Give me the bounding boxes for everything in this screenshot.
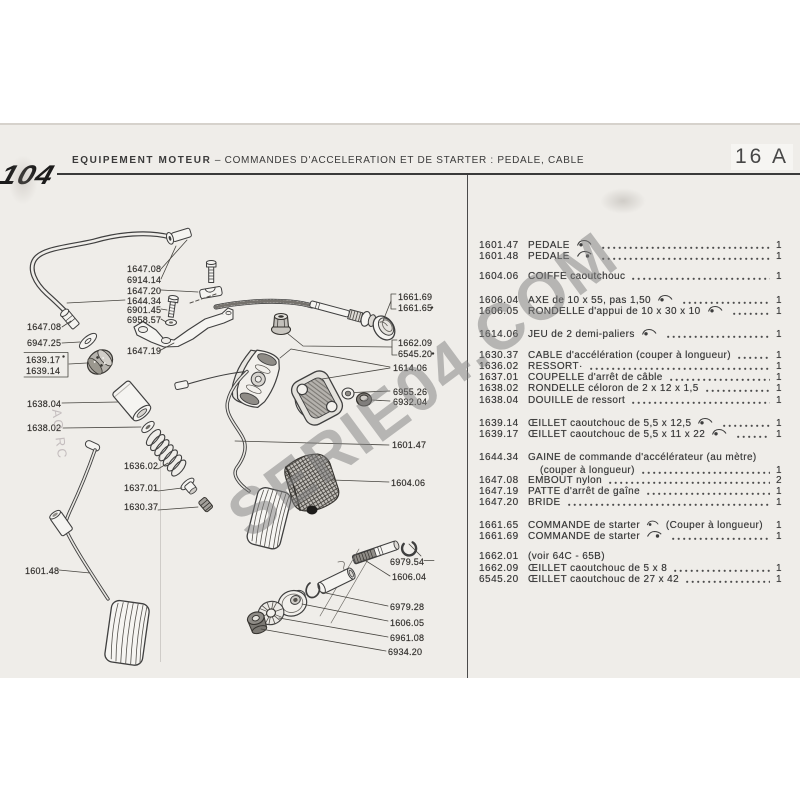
svg-text:1647.20: 1647.20 xyxy=(127,286,161,296)
svg-text:1638.04: 1638.04 xyxy=(27,399,61,409)
svg-text:1604.06: 1604.06 xyxy=(391,478,425,488)
svg-text:1647.08: 1647.08 xyxy=(127,264,161,274)
svg-text:6979.54: 6979.54 xyxy=(390,557,424,567)
svg-text:1630.37: 1630.37 xyxy=(124,502,158,512)
svg-text:1661.65: 1661.65 xyxy=(398,303,432,313)
svg-text:1637.01: 1637.01 xyxy=(124,483,158,493)
svg-text:6958.57: 6958.57 xyxy=(127,315,161,325)
svg-text:6979.28: 6979.28 xyxy=(390,602,424,612)
svg-text:1661.69: 1661.69 xyxy=(398,292,432,302)
svg-text:6947.25: 6947.25 xyxy=(27,338,61,348)
svg-text:1647.19: 1647.19 xyxy=(127,346,161,356)
svg-text:1647.08: 1647.08 xyxy=(27,322,61,332)
svg-text:1636.02: 1636.02 xyxy=(124,461,158,471)
svg-text:1606.05: 1606.05 xyxy=(390,618,424,628)
svg-text:1639.14: 1639.14 xyxy=(26,366,60,376)
svg-text:6901.45: 6901.45 xyxy=(127,305,161,315)
svg-text:1606.04: 1606.04 xyxy=(392,572,426,582)
svg-text:6961.08: 6961.08 xyxy=(390,633,424,643)
svg-text:6934.20: 6934.20 xyxy=(388,647,422,657)
svg-text:1601.48: 1601.48 xyxy=(25,566,59,576)
svg-text:1639.17: 1639.17 xyxy=(26,355,60,365)
svg-text:6914.14: 6914.14 xyxy=(127,275,161,285)
